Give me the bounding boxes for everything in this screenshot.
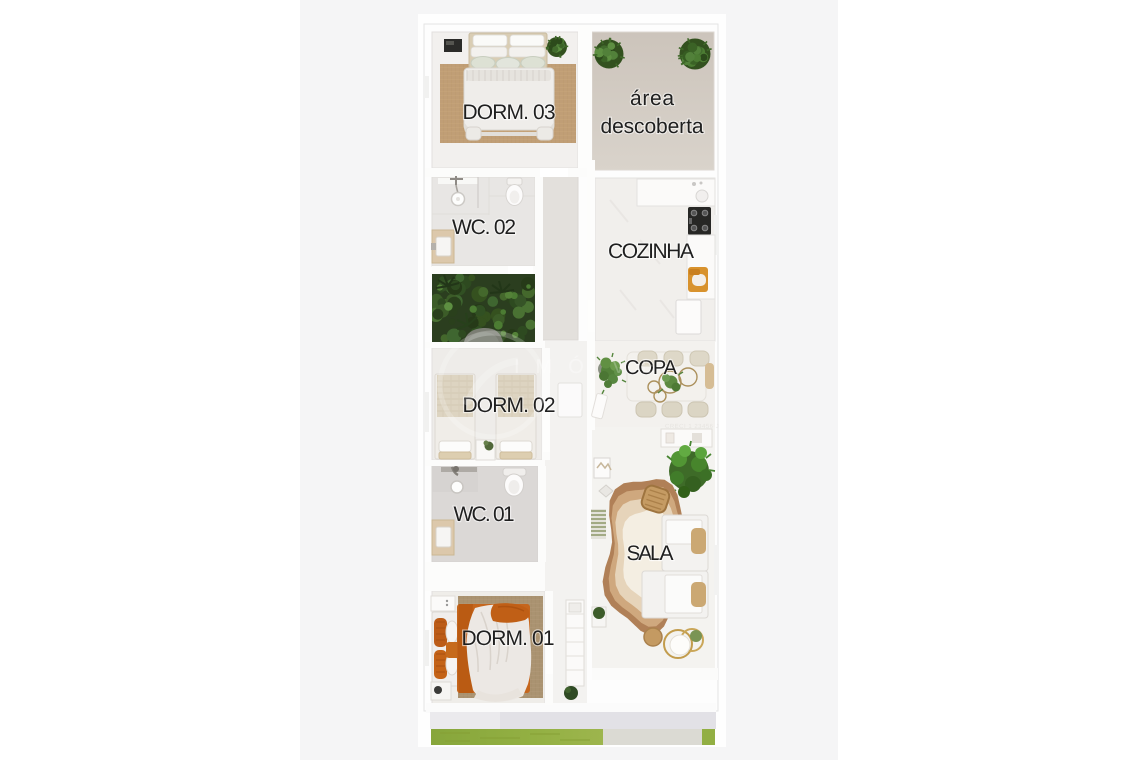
svg-text:COZINHA: COZINHA xyxy=(608,240,694,263)
svg-text:WC. 02: WC. 02 xyxy=(452,216,516,239)
svg-text:WC. 01: WC. 01 xyxy=(454,503,515,526)
svg-text:descoberta: descoberta xyxy=(601,115,704,138)
svg-text:IMÓ: IMÓ xyxy=(514,355,600,378)
svg-text:VE: VE xyxy=(612,356,671,378)
svg-text:área: área xyxy=(630,87,674,110)
svg-text:SALA: SALA xyxy=(627,542,674,565)
svg-text:DORM. 03: DORM. 03 xyxy=(463,101,556,124)
svg-text:DORM. 01: DORM. 01 xyxy=(462,627,555,650)
svg-text:CRECI 1 23456 J: CRECI 1 23456 J xyxy=(665,423,719,430)
